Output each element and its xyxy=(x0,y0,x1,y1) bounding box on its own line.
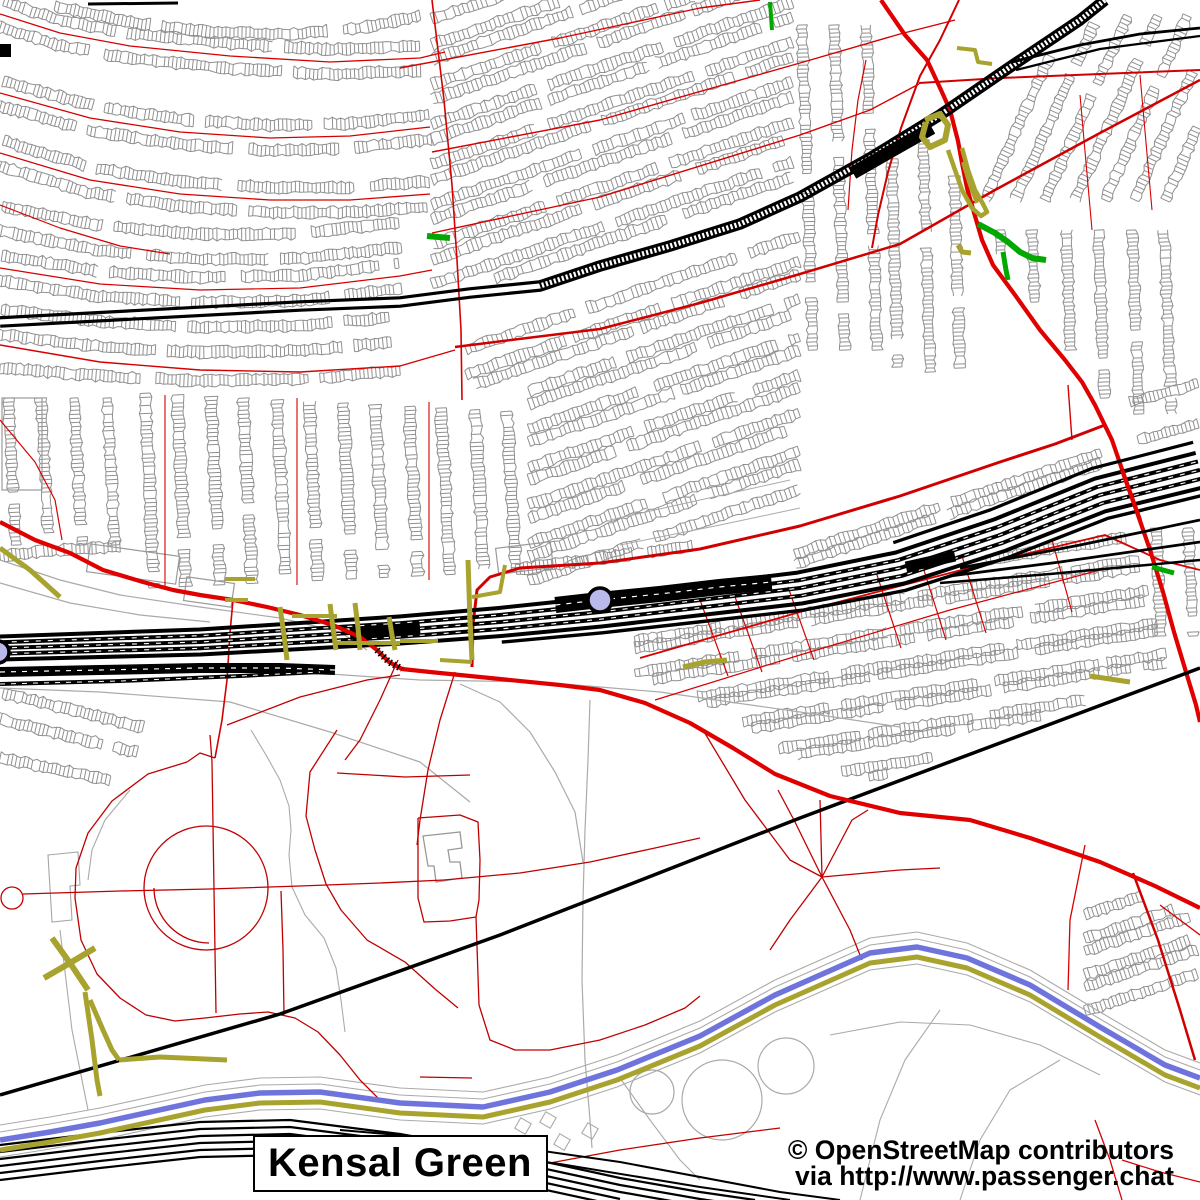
svg-text:via http://www.passenger.chat: via http://www.passenger.chat xyxy=(795,1161,1174,1191)
svg-text:Kensal Green: Kensal Green xyxy=(268,1141,532,1185)
